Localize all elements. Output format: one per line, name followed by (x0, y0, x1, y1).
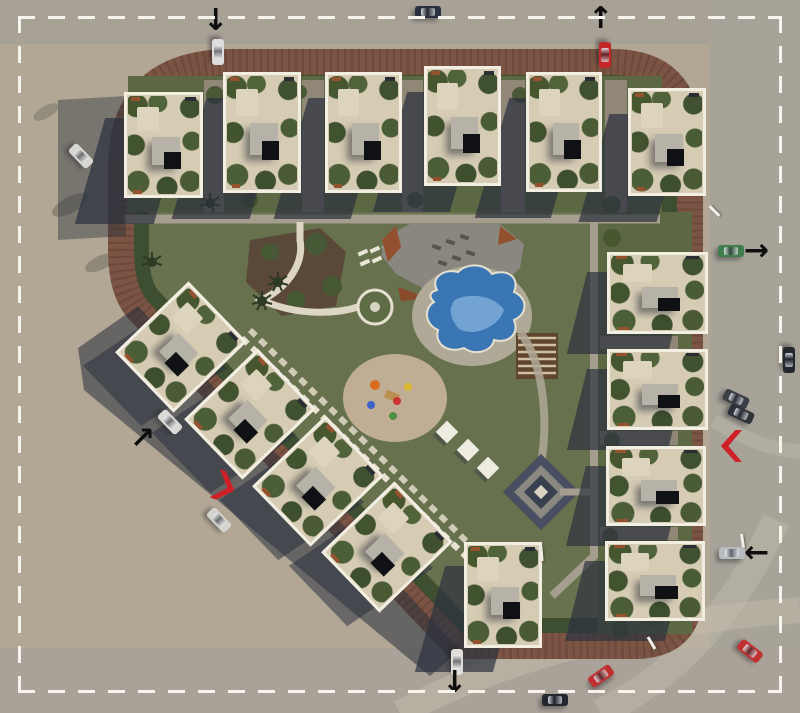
roof-unit (585, 77, 595, 82)
roof-terrace (621, 553, 649, 571)
roof-vent (637, 187, 646, 191)
roof-vent (131, 97, 140, 101)
roof-vent (614, 545, 625, 548)
roof-vent (635, 93, 644, 97)
roof-vent (533, 77, 541, 82)
boundary-left (18, 16, 21, 692)
villa-1 (124, 92, 203, 198)
roof-stair-bulkhead (262, 141, 279, 161)
car-green-east-exit (718, 245, 744, 257)
roof-terrace (236, 89, 258, 117)
boundary-bottom (18, 690, 782, 693)
roof-terrace (641, 103, 663, 127)
roof-terrace (539, 89, 560, 116)
arrow-exit-east: → (744, 236, 769, 266)
car-red-northeast-exit (599, 42, 611, 68)
roof-stair-bulkhead (655, 586, 678, 599)
boundary-right (779, 16, 782, 692)
roof-vent (232, 184, 241, 189)
roof-vent (615, 450, 626, 453)
roof-terrace (437, 83, 458, 110)
car-white-north-entrance (212, 39, 224, 65)
roof-vent (616, 614, 627, 617)
roof-terrace (623, 264, 652, 282)
roof-vent (471, 547, 480, 551)
roof-vent (617, 519, 628, 522)
roof-vent (618, 327, 629, 330)
villa-3 (325, 72, 402, 193)
roof-unit (683, 545, 696, 548)
car-dark-south-road (542, 694, 568, 706)
roof-unit (284, 77, 294, 82)
roof-terrace (623, 361, 652, 379)
roof-vent (616, 256, 627, 259)
car-black-east-edge (783, 347, 795, 373)
roof-terrace (477, 557, 499, 581)
roof-vent (473, 640, 482, 644)
roof-vent (616, 353, 627, 356)
roof-unit (185, 97, 195, 101)
roof-vent (133, 190, 142, 194)
arrow-exit-south: ↓ (442, 668, 467, 698)
villa-7 (607, 252, 708, 334)
roof-stair-bulkhead (658, 395, 681, 408)
villa-6 (628, 88, 706, 196)
villa-2 (223, 72, 301, 193)
roof-unit (686, 256, 699, 259)
roof-unit (684, 450, 697, 453)
villa-4 (424, 66, 501, 186)
north-road (0, 0, 800, 44)
roof-vent (433, 177, 442, 182)
round-feature-center (370, 302, 380, 312)
roof-unit (484, 71, 494, 76)
villa-10 (605, 541, 705, 621)
boundary-top (18, 16, 782, 19)
car-silver-east-gate (719, 547, 745, 559)
roof-terrace (622, 458, 650, 476)
roof-vent (431, 71, 440, 76)
roof-vent (618, 423, 629, 426)
roof-stair-bulkhead (667, 149, 684, 166)
roof-unit (686, 353, 699, 356)
master-plan-canvas: ↓↑→←↗↓ (0, 0, 800, 713)
roof-vent (334, 184, 343, 189)
roof-unit (689, 93, 699, 97)
roof-stair-bulkhead (364, 141, 381, 161)
roof-vent (230, 77, 239, 82)
roof-terrace (338, 89, 359, 117)
roof-vent (535, 183, 543, 188)
roof-unit (525, 547, 535, 551)
roof-terrace (137, 107, 159, 131)
roof-stair-bulkhead (564, 140, 581, 159)
arrow-exit-north-east: ↑ (588, 4, 613, 34)
roof-unit (385, 77, 395, 82)
villa-8 (607, 349, 708, 430)
roof-stair-bulkhead (503, 602, 520, 619)
roof-stair-bulkhead (656, 491, 679, 504)
villa-9 (606, 446, 706, 526)
roof-stair-bulkhead (463, 134, 480, 153)
villa-5 (526, 72, 602, 192)
villa-15 (464, 542, 542, 648)
roof-vent (332, 77, 341, 82)
arrow-entry-east: ← (744, 538, 769, 568)
arrow-entry-west: ↗ (130, 424, 155, 454)
roof-stair-bulkhead (658, 298, 681, 311)
roof-stair-bulkhead (164, 152, 182, 169)
arrow-entry-north-west: ↓ (203, 6, 228, 36)
